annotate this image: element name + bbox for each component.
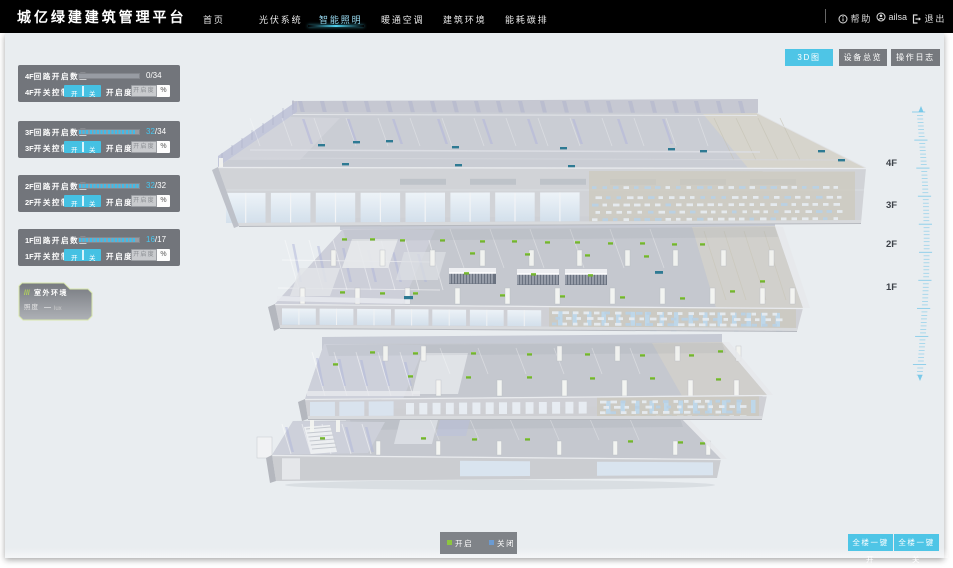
svg-text:室外环境: 室外环境 (34, 288, 68, 297)
svg-text:照度: 照度 (24, 302, 39, 311)
svg-text:lux: lux (54, 306, 62, 312)
svg-text:///: /// (24, 290, 30, 297)
svg-text:—: — (44, 304, 51, 311)
